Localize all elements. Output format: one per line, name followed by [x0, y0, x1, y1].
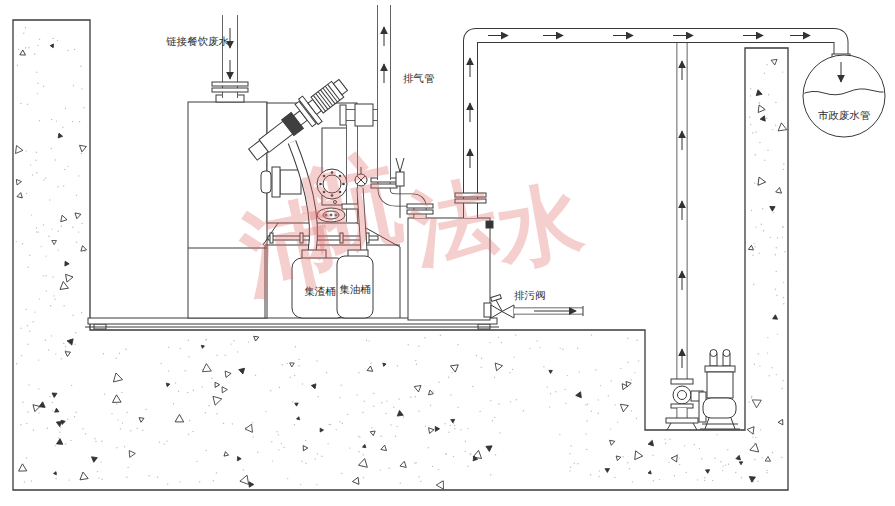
municipal-sewer-label: 市政废水管 — [818, 109, 871, 121]
municipal-sewer — [800, 55, 890, 137]
process-diagram: 集渣桶 集油桶 排气管 — [0, 0, 895, 506]
inlet-label: 链接餐饮废水 — [166, 35, 230, 47]
drain-valve-label: 排污阀 — [514, 289, 546, 301]
vent-pipe-label: 排气管 — [403, 72, 435, 84]
watermark-char-4: 水 — [487, 171, 590, 280]
inlet-pipe — [212, 15, 248, 98]
process-diagram-svg: 集渣桶 集油桶 排气管 — [0, 0, 895, 506]
